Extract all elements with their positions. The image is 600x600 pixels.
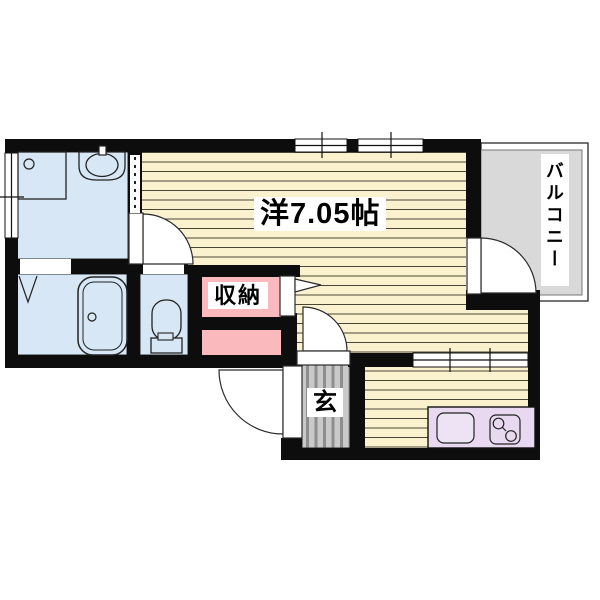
door-opening xyxy=(20,259,71,274)
balcony-label: バルコニー xyxy=(541,155,566,277)
wall xyxy=(281,438,302,450)
washroom-floor xyxy=(17,152,128,259)
accordion-door-icon xyxy=(130,155,140,213)
floor-plan-drawing xyxy=(0,0,600,600)
kitchen-counter xyxy=(428,407,535,448)
entrance-label: 玄 xyxy=(307,388,343,417)
wall xyxy=(350,365,365,448)
main-room-label: 洋7.05帖 xyxy=(254,197,386,231)
wall xyxy=(5,355,297,368)
wall xyxy=(466,139,481,238)
wall xyxy=(281,313,297,356)
storage-lower xyxy=(202,330,281,356)
door-swing-icon xyxy=(219,366,302,438)
kitchen-sink-icon xyxy=(437,413,474,443)
storage-label: 収納 xyxy=(208,282,268,309)
floor-plan: 洋7.05帖 収納 玄 バルコニー xyxy=(0,0,600,600)
wall xyxy=(348,353,413,367)
wall xyxy=(188,265,202,356)
wall xyxy=(127,274,140,355)
wall xyxy=(188,265,300,277)
wall xyxy=(281,448,540,460)
